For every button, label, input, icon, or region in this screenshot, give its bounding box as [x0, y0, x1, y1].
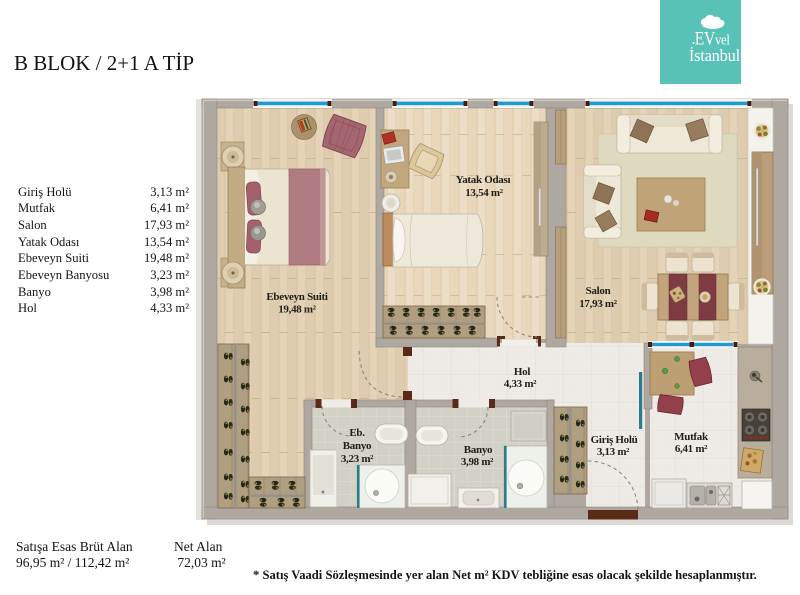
svg-text:Giriş Holü: Giriş Holü — [591, 434, 638, 446]
svg-text:17,93 m²: 17,93 m² — [579, 298, 618, 310]
svg-text:Hol: Hol — [514, 366, 530, 378]
svg-text:Salon: Salon — [586, 285, 611, 297]
svg-text:Eb.: Eb. — [349, 427, 365, 439]
svg-text:Banyo: Banyo — [343, 440, 372, 452]
svg-text:3,98 m²: 3,98 m² — [461, 456, 494, 468]
svg-text:6,41 m²: 6,41 m² — [675, 443, 708, 455]
svg-text:Banyo: Banyo — [464, 444, 493, 456]
svg-text:13,54 m²: 13,54 m² — [465, 187, 504, 199]
svg-text:4,33 m²: 4,33 m² — [504, 378, 537, 390]
svg-text:Yatak Odası: Yatak Odası — [456, 174, 511, 186]
svg-text:19,48 m²: 19,48 m² — [278, 304, 317, 316]
svg-text:Ebeveyn Suiti: Ebeveyn Suiti — [266, 291, 327, 303]
svg-text:Mutfak: Mutfak — [674, 431, 709, 443]
svg-text:3,13 m²: 3,13 m² — [597, 446, 630, 458]
svg-text:3,23 m²: 3,23 m² — [341, 453, 374, 465]
